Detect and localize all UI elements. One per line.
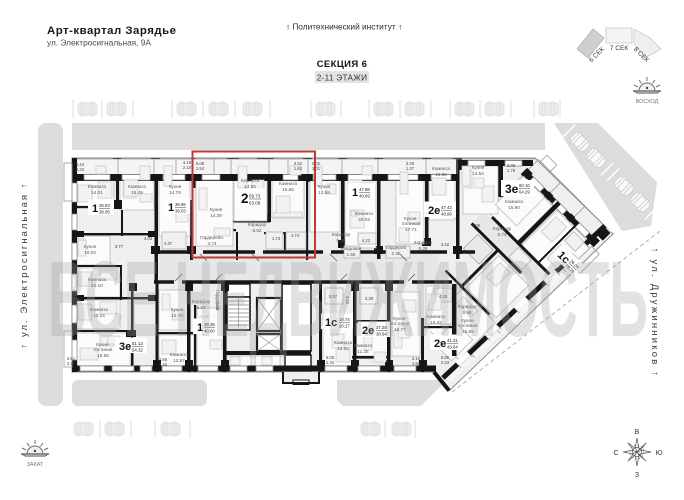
svg-text:3е: 3е [505, 182, 519, 196]
svg-text:6.74: 6.74 [498, 232, 507, 237]
svg-text:ул. Электросигнальная, 9А: ул. Электросигнальная, 9А [47, 38, 151, 48]
svg-text:1.79: 1.79 [507, 168, 516, 173]
svg-text:47.88: 47.88 [359, 187, 370, 192]
svg-text:2.17: 2.17 [67, 361, 76, 366]
svg-text:20.03: 20.03 [358, 217, 370, 222]
svg-text:Комната: Комната [432, 166, 450, 171]
svg-text:ВСЕ НЕДВИЖИМОСТЬ: ВСЕ НЕДВИЖИМОСТЬ [48, 238, 648, 359]
svg-text:1.81: 1.81 [294, 166, 303, 171]
svg-text:1: 1 [352, 187, 358, 199]
svg-text:1.33: 1.33 [326, 360, 335, 365]
svg-text:1.01: 1.01 [312, 166, 321, 171]
svg-text:48.99: 48.99 [441, 212, 452, 217]
svg-text:49.69: 49.69 [359, 194, 370, 199]
svg-text:З: З [635, 472, 639, 479]
svg-text:1: 1 [168, 202, 174, 214]
svg-text:38.05: 38.05 [99, 210, 110, 215]
svg-text:13.58: 13.58 [318, 190, 330, 195]
svg-text:1.37: 1.37 [406, 166, 415, 171]
svg-text:Кухня: Кухня [472, 165, 485, 170]
svg-text:Комната: Комната [355, 211, 373, 216]
svg-text:↑ Политехнический институт ↑: ↑ Политехнический институт ↑ [286, 22, 402, 32]
svg-text:14.54: 14.54 [472, 171, 484, 176]
svg-text:Коридор: Коридор [332, 232, 351, 237]
svg-text:ВОСХОД: ВОСХОД [636, 99, 659, 105]
svg-text:Комната: Комната [505, 199, 523, 204]
svg-text:В: В [635, 429, 640, 436]
svg-text:47.42: 47.42 [441, 205, 452, 210]
svg-text:60.10: 60.10 [519, 183, 530, 188]
svg-text:Ю: Ю [655, 450, 662, 457]
svg-text:1: 1 [92, 203, 98, 215]
svg-text:1.54: 1.54 [196, 166, 205, 171]
svg-text:15.49: 15.49 [131, 190, 143, 195]
svg-text:СЕКЦИЯ 6: СЕКЦИЯ 6 [317, 59, 368, 70]
svg-text:ЗАКАТ: ЗАКАТ [27, 462, 44, 468]
svg-text:64.29: 64.29 [519, 190, 530, 195]
svg-text:2е: 2е [428, 205, 440, 217]
svg-text:Кухня: Кухня [169, 184, 182, 189]
svg-text:7 СЕК: 7 СЕК [610, 45, 628, 52]
svg-text:Коридор: Коридор [248, 222, 267, 227]
svg-text:1.44: 1.44 [159, 362, 168, 367]
svg-text:4.05: 4.05 [472, 223, 481, 228]
svg-text:Кухня: Кухня [210, 207, 223, 212]
svg-text:1.56: 1.56 [412, 361, 421, 366]
svg-text:Арт-квартал Зарядье: Арт-квартал Зарядье [47, 25, 176, 37]
svg-text:15.66: 15.66 [282, 187, 294, 192]
svg-text:2.33: 2.33 [441, 360, 450, 365]
svg-text:Коридор: Коридор [493, 226, 512, 231]
svg-text:Комната: Комната [88, 184, 106, 189]
svg-text:2.10: 2.10 [183, 165, 192, 170]
svg-text:16.90: 16.90 [508, 205, 520, 210]
svg-text:35.83: 35.83 [99, 203, 110, 208]
svg-text:14.01: 14.01 [91, 190, 103, 195]
svg-text:↑ ул. Дружинников ↑: ↑ ул. Дружинников ↑ [649, 248, 660, 378]
svg-text:↑ ул. Электросигнальная ↑: ↑ ул. Электросигнальная ↑ [19, 182, 30, 349]
svg-text:гостиная: гостиная [402, 221, 421, 226]
svg-text:16.55: 16.55 [435, 172, 447, 177]
svg-text:14.55: 14.55 [244, 184, 256, 189]
svg-text:Комната: Комната [128, 184, 146, 189]
svg-text:2.22: 2.22 [76, 167, 85, 172]
svg-text:14.39: 14.39 [210, 213, 222, 218]
svg-text:59.73: 59.73 [249, 194, 261, 199]
svg-text:Кухня: Кухня [318, 184, 331, 189]
svg-text:2-11 ЭТАЖИ: 2-11 ЭТАЖИ [317, 74, 368, 83]
svg-text:36.96: 36.96 [175, 202, 186, 207]
svg-text:2: 2 [241, 191, 249, 206]
svg-text:Комната: Комната [241, 178, 259, 183]
svg-text:14.78: 14.78 [169, 190, 181, 195]
svg-text:С: С [613, 450, 618, 457]
svg-text:8.52: 8.52 [253, 228, 262, 233]
svg-text:17.71: 17.71 [405, 227, 417, 232]
svg-text:63.08: 63.08 [249, 201, 261, 206]
svg-text:39.03: 39.03 [175, 209, 186, 214]
svg-text:Комната: Комната [279, 181, 297, 186]
